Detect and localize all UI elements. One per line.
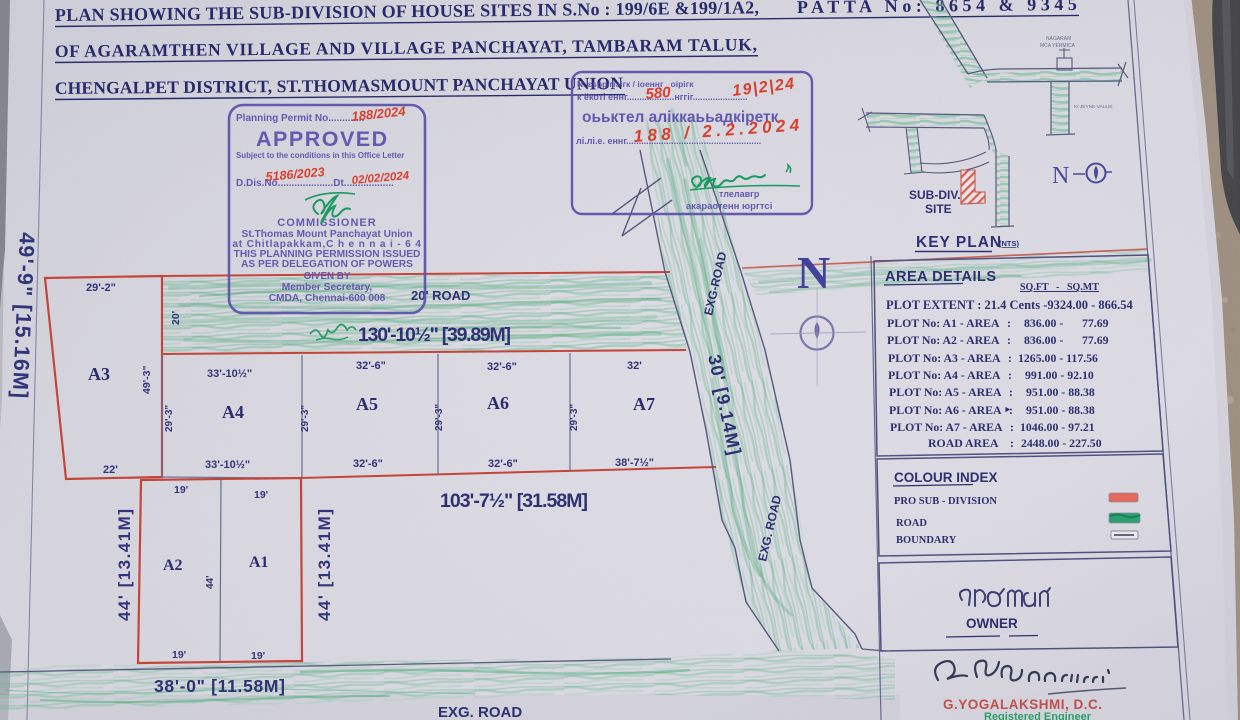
svg-text:44' [13.41M]: 44' [13.41M] [315, 509, 334, 621]
svg-text:N: N [1052, 163, 1069, 189]
svg-text:951.00 - 88.38: 951.00 - 88.38 [1026, 403, 1095, 417]
svg-text:PLOT No: A3 - AREA: PLOT No: A3 - AREA [888, 351, 1001, 365]
svg-text:COMMISSIONER: COMMISSIONER [277, 217, 376, 229]
svg-text:A7: A7 [633, 394, 655, 414]
svg-text:29'-3": 29'-3" [164, 405, 175, 432]
svg-text:49'-3": 49'-3" [141, 365, 153, 394]
svg-text:Subject to the conditions in t: Subject to the conditions in this Office… [236, 151, 404, 160]
svg-text:AREA DETAILS: AREA DETAILS [885, 269, 997, 285]
svg-text:NAGARAM: NAGARAM [1046, 36, 1071, 42]
svg-text:(NTS): (NTS) [999, 239, 1019, 248]
svg-text::: : [1007, 316, 1011, 330]
svg-text:COLOUR INDEX: COLOUR INDEX [894, 470, 998, 485]
svg-text:PRO SUB - DIVISION: PRO SUB - DIVISION [894, 496, 997, 507]
svg-text:Registered Engineer: Registered Engineer [984, 711, 1092, 720]
svg-text::: : [1007, 333, 1011, 347]
svg-text:A3: A3 [88, 364, 110, 384]
svg-text:836.00 -: 836.00 - [1024, 333, 1063, 347]
svg-text:32'-6": 32'-6" [353, 458, 383, 470]
svg-text:тлелавгр: тлелавгр [719, 189, 760, 199]
svg-text:PLOT No: A7 - AREA: PLOT No: A7 - AREA [890, 420, 1003, 434]
svg-text:A2: A2 [163, 557, 183, 574]
svg-text:EXG. ROAD: EXG. ROAD [438, 704, 522, 720]
svg-text:CMDA, Chennai-600 008: CMDA, Chennai-600 008 [269, 293, 386, 304]
svg-text:19': 19' [172, 649, 186, 661]
svg-text:SUB-DIV.: SUB-DIV. [909, 188, 961, 202]
svg-text:A4: A4 [222, 402, 244, 422]
svg-text:103'-7½" [31.58M]: 103'-7½" [31.58M] [440, 490, 588, 512]
svg-text:29'-3": 29'-3" [300, 405, 311, 432]
svg-text:PLOT No: A6 - AREA ‣: PLOT No: A6 - AREA ‣ [889, 403, 1011, 417]
svg-text:44' [13.41M]: 44' [13.41M] [115, 509, 134, 621]
svg-text:19': 19' [254, 489, 268, 501]
svg-text:PLOT No: A5 - AREA: PLOT No: A5 - AREA [889, 385, 1002, 399]
svg-text:Planning Permit No............: Planning Permit No............. [236, 113, 365, 124]
svg-text::: : [1008, 368, 1012, 382]
svg-text::: : [1009, 385, 1013, 399]
svg-text:APPROVED: APPROVED [256, 127, 389, 151]
svg-text:991.00 - 92.10: 991.00 - 92.10 [1025, 368, 1094, 382]
svg-text:PLOT EXTENT : 21.4 Cents -9324: PLOT EXTENT : 21.4 Cents -9324.00 - 866.… [886, 298, 1134, 312]
svg-text:Member Secretary,: Member Secretary, [282, 282, 373, 293]
svg-text:580: 580 [645, 84, 672, 103]
svg-text:A5: A5 [356, 394, 378, 414]
svg-text:130'-10½" [39.89M]: 130'-10½" [39.89M] [358, 324, 511, 346]
svg-text:N. ɛѕррігіэігк / іоеннг ‗оі: N. ɛѕррігіэігк / іоеннг ‗оірігк [577, 79, 694, 90]
svg-text:33'-10½": 33'-10½" [207, 368, 252, 380]
svg-text:32'-6": 32'-6" [488, 458, 518, 470]
svg-text:BOUNDARY: BOUNDARY [896, 535, 957, 546]
svg-text:1265.00 - 117.56: 1265.00 - 117.56 [1018, 351, 1098, 365]
svg-text:77.69: 77.69 [1082, 316, 1109, 330]
svg-text:2448.00 - 227.50: 2448.00 - 227.50 [1021, 436, 1102, 450]
svg-text:N: N [797, 247, 830, 298]
svg-text::: : [1010, 436, 1014, 450]
svg-text:SQ.FT - SQ.MT: SQ.FT - SQ.MT [1020, 282, 1099, 293]
svg-text:33'-10½": 33'-10½" [205, 459, 250, 471]
svg-text:19': 19' [251, 650, 265, 662]
svg-text:951.00 - 88.38: 951.00 - 88.38 [1026, 385, 1095, 399]
svg-text:32'-6": 32'-6" [356, 360, 386, 372]
svg-text::: : [1010, 420, 1014, 434]
svg-text::: : [1009, 403, 1013, 417]
svg-text:38'-7½": 38'-7½" [615, 457, 654, 469]
svg-text:G.YOGALAKSHMI, D.C.: G.YOGALAKSHMI, D.C. [943, 697, 1103, 712]
svg-text:SITE: SITE [925, 202, 952, 216]
svg-text:29'-2": 29'-2" [86, 282, 116, 294]
svg-text:1046.00 - 97.21: 1046.00 - 97.21 [1020, 420, 1095, 434]
svg-text:32': 32' [627, 360, 642, 372]
svg-text:29'-3": 29'-3" [569, 404, 580, 431]
svg-text:PLOT No: A1 - AREA: PLOT No: A1 - AREA [887, 316, 1000, 330]
svg-text:A1: A1 [249, 554, 269, 571]
svg-text:20' ROAD: 20' ROAD [411, 288, 470, 303]
svg-text:836.00 -: 836.00 - [1024, 316, 1063, 330]
svg-text:20': 20' [170, 311, 182, 325]
svg-text:ROAD AREA: ROAD AREA [928, 436, 999, 450]
svg-text:32'-6": 32'-6" [487, 361, 517, 373]
svg-text:38'-0" [11.58M]: 38'-0" [11.58M] [154, 676, 285, 696]
svg-text:PLOT No: A2 - AREA: PLOT No: A2 - AREA [887, 333, 1000, 347]
svg-text:OWNER: OWNER [966, 616, 1018, 631]
svg-text:19': 19' [174, 484, 188, 496]
svg-text:77.69: 77.69 [1082, 333, 1109, 347]
svg-text::: : [1008, 351, 1012, 365]
svg-text:22': 22' [103, 464, 118, 476]
svg-text:KEY PLAN: KEY PLAN [916, 234, 1002, 251]
svg-text:KI JEYNE VALLIK: KI JEYNE VALLIK [1074, 104, 1113, 110]
svg-text:акараотенн юргтсі: акараотенн юргтсі [686, 201, 772, 212]
svg-text:A6: A6 [487, 393, 509, 413]
svg-text:ROAD: ROAD [896, 518, 927, 529]
svg-text:MCA YERMICA: MCA YERMICA [1040, 43, 1076, 49]
svg-text:29'-3": 29'-3" [434, 404, 445, 431]
svg-text:44': 44' [205, 575, 216, 589]
svg-text:GIVEN BY: GIVEN BY [304, 271, 351, 282]
svg-text:AS PER DELEGATION OF POWERS: AS PER DELEGATION OF POWERS [241, 259, 413, 270]
svg-text:PLOT No: A4 - AREA: PLOT No: A4 - AREA [888, 368, 1001, 382]
